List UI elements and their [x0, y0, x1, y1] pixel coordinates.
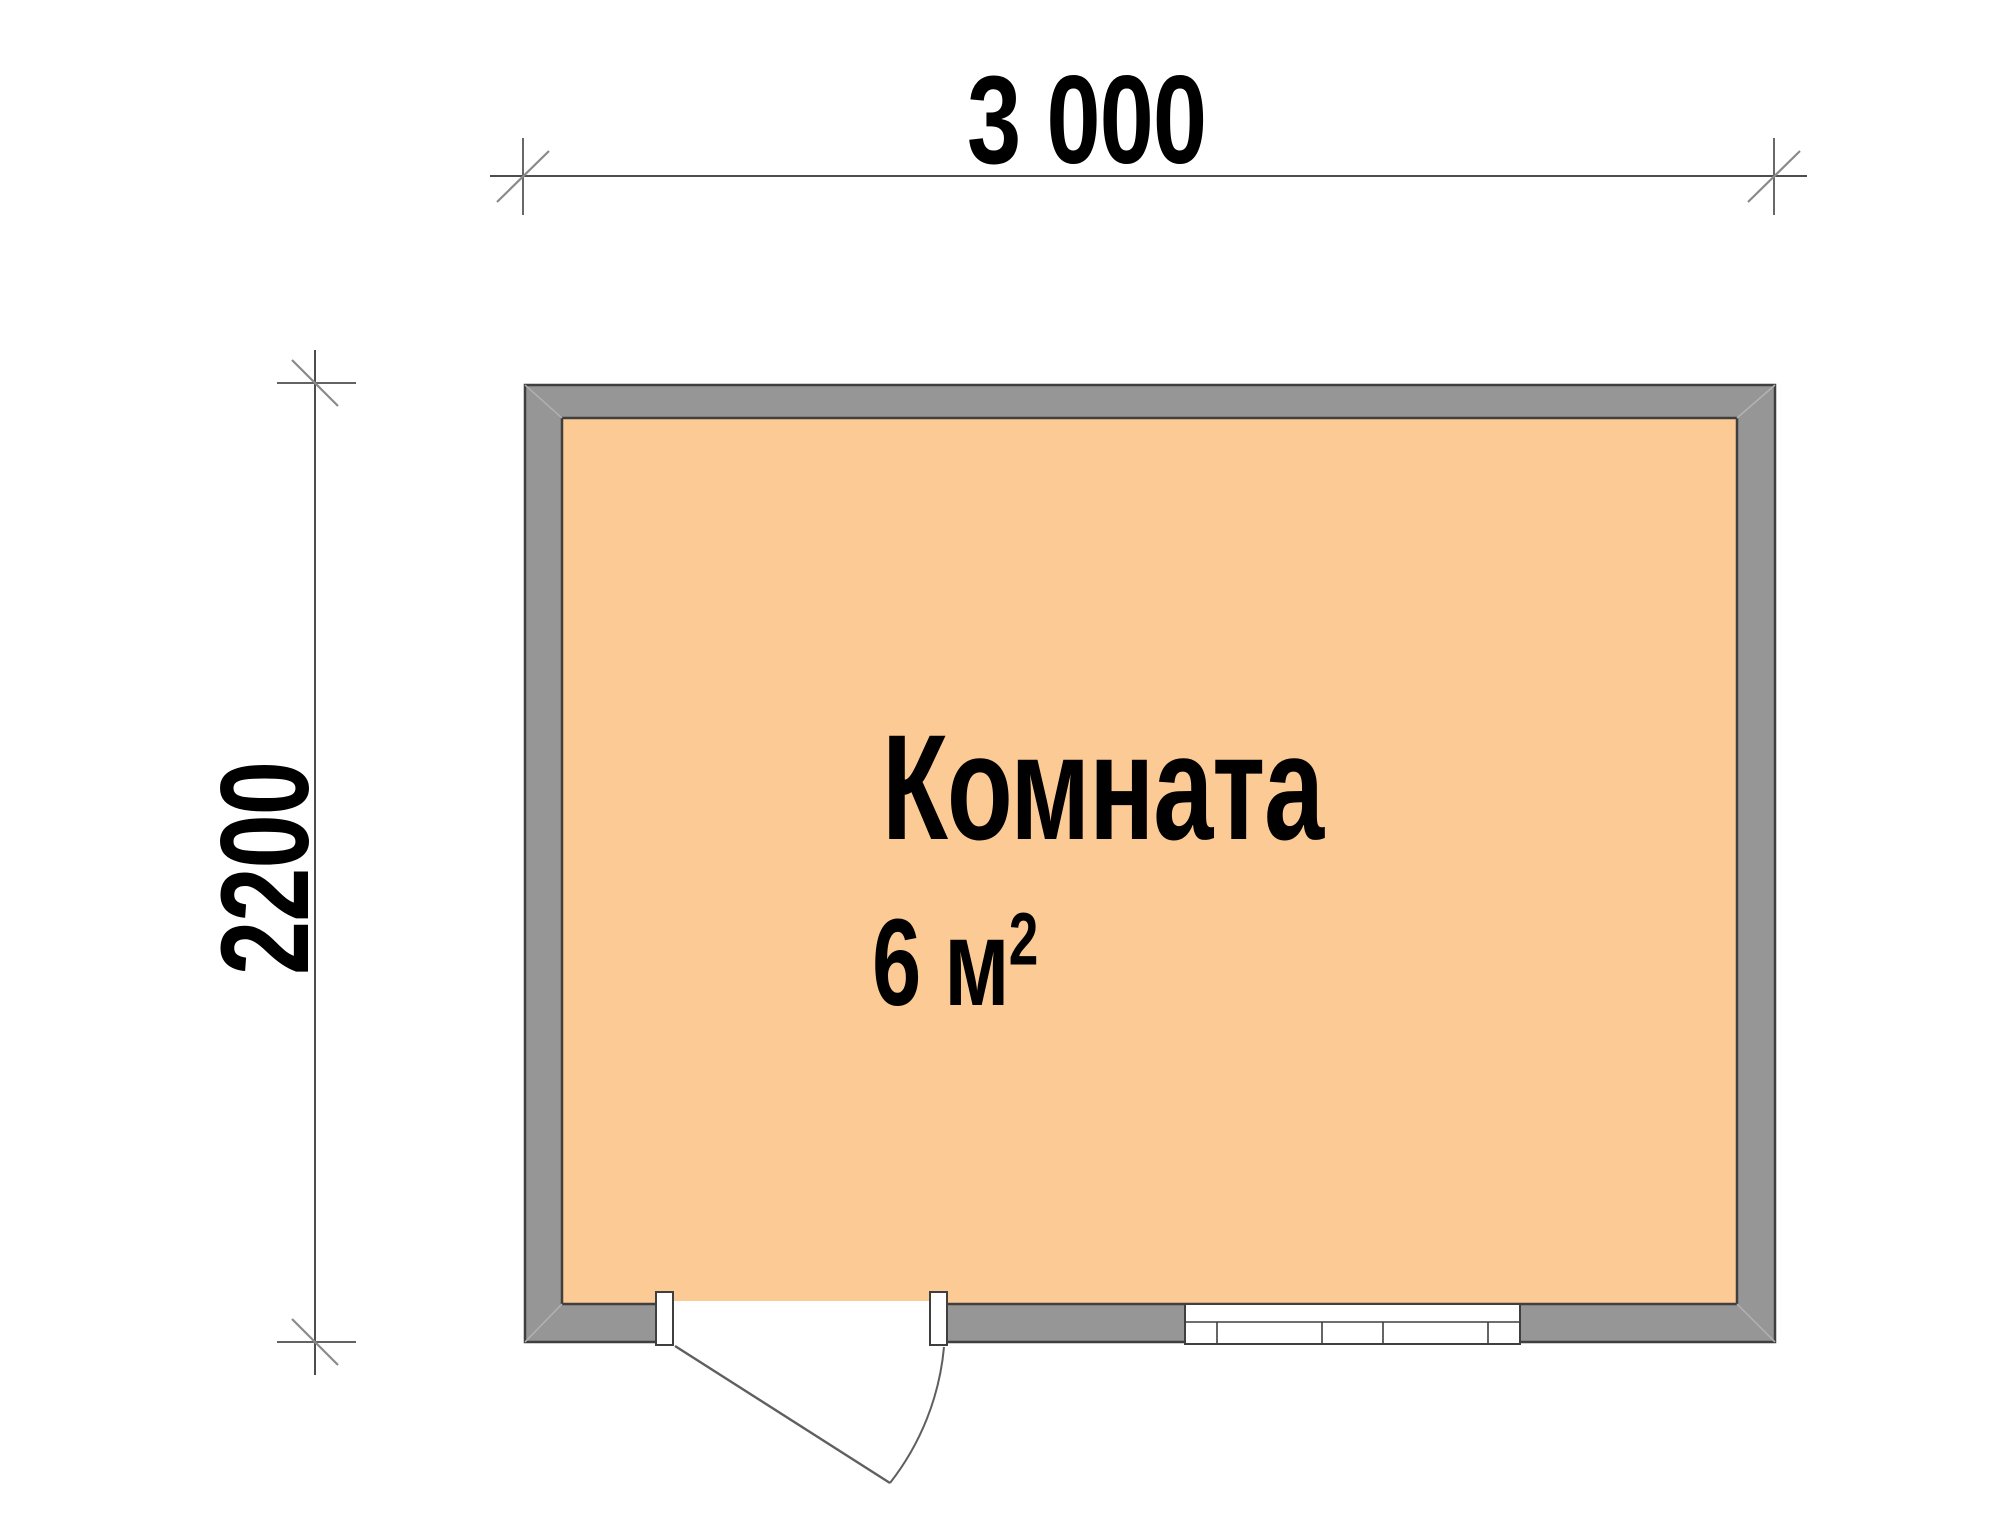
room-name-label: Комната: [882, 712, 1323, 862]
door-jamb: [656, 1292, 673, 1345]
door-swing-symbol: [656, 1292, 947, 1483]
dimension-height-label: 2200: [203, 762, 328, 975]
room-area-superscript: 2: [1009, 897, 1038, 980]
window-frame: [1185, 1304, 1520, 1344]
floor-plan-canvas: 3 000 2200 Комната 6 м2: [0, 0, 2000, 1538]
window-symbol: [1185, 1304, 1520, 1344]
door-jamb: [930, 1292, 947, 1345]
room-area-label: 6 м2: [872, 902, 1037, 1025]
door-opening: [658, 1301, 946, 1349]
room-area-value: 6 м: [872, 895, 1009, 1032]
door-swing-arc: [890, 1347, 944, 1483]
dimension-width-label: 3 000: [967, 58, 1206, 183]
door-leaf: [675, 1346, 890, 1483]
